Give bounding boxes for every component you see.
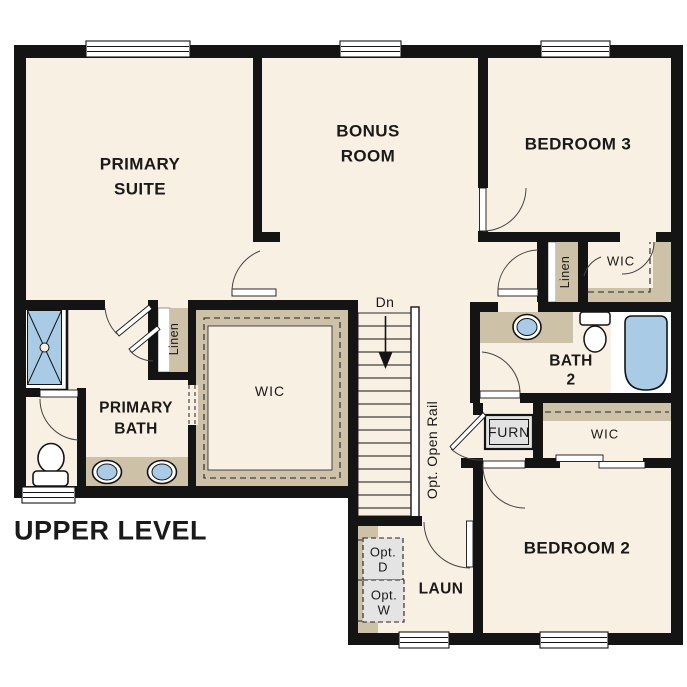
window-bedroom3 bbox=[541, 41, 610, 57]
hall-vestibule-door bbox=[232, 289, 276, 296]
opt-washer-label-line2: W bbox=[378, 604, 391, 617]
window-bonus-room bbox=[340, 41, 401, 57]
laundry-label: LAUN bbox=[419, 581, 464, 597]
laundry-door bbox=[467, 521, 474, 567]
wic-bedroom3-opening bbox=[620, 232, 656, 242]
stair-open-rail bbox=[411, 307, 419, 517]
furnace-label: FURN bbox=[488, 425, 530, 439]
bedroom2-door bbox=[483, 461, 525, 468]
window-primary-bath bbox=[22, 487, 75, 503]
window-laundry bbox=[399, 632, 449, 648]
wic-bedroom3-shelf-east bbox=[653, 242, 671, 306]
bath2-label-line2: 2 bbox=[566, 372, 575, 388]
bedroom3-door bbox=[480, 188, 487, 231]
sink-primary-left bbox=[93, 461, 122, 484]
primary-bath-label-line2: BATH bbox=[114, 421, 158, 437]
window-primary-suite bbox=[86, 41, 190, 57]
bath2-label-line1: BATH bbox=[549, 353, 593, 369]
bath2-north-door bbox=[498, 289, 538, 296]
primary-suite-label-line2: SUITE bbox=[114, 181, 166, 198]
linen-bedroom3-door bbox=[548, 242, 556, 302]
bath2-south-door bbox=[480, 391, 520, 398]
bedroom3-label: BEDROOM 3 bbox=[525, 136, 632, 153]
wic-bedroom2-bypass-door-2 bbox=[599, 462, 645, 469]
linen-primary-label: Linen bbox=[168, 323, 181, 356]
bedroom2-label: BEDROOM 2 bbox=[524, 540, 631, 557]
bonus-room-label-line1: BONUS bbox=[336, 123, 399, 140]
water-closet-door bbox=[40, 390, 78, 397]
wic-bedroom2-label: WIC bbox=[591, 428, 619, 441]
bathtub bbox=[611, 312, 671, 393]
plan-title: UPPER LEVEL bbox=[14, 516, 207, 547]
floor-plan-drawing bbox=[0, 0, 687, 687]
shower bbox=[22, 305, 67, 390]
primary-bath-label-line1: PRIMARY bbox=[99, 400, 173, 416]
bonus-room-label-line2: ROOM bbox=[341, 148, 395, 165]
sink-primary-right bbox=[148, 461, 177, 484]
wic-primary-label: WIC bbox=[255, 384, 285, 398]
opt-dryer-label-line1: Opt. bbox=[370, 546, 396, 559]
window-bedroom2 bbox=[540, 632, 608, 648]
opt-dryer-label-line2: D bbox=[378, 561, 388, 574]
stair-shaft bbox=[358, 313, 411, 516]
staircase bbox=[358, 307, 419, 517]
sink-bath2 bbox=[513, 315, 541, 340]
opt-washer-label-line1: Opt. bbox=[371, 589, 397, 602]
wic-bedroom2-bypass-door-1 bbox=[556, 455, 603, 462]
primary-suite-label-line1: PRIMARY bbox=[100, 156, 181, 173]
stairs-down-label: Dn bbox=[376, 295, 395, 309]
stairs-open-rail-label: Opt. Open Rail bbox=[425, 401, 439, 499]
linen-bedroom3-label: Linen bbox=[559, 256, 572, 289]
wic-bedroom3-label: WIC bbox=[607, 255, 635, 268]
wic-primary-opening bbox=[186, 385, 198, 425]
floor-plan: PRIMARY SUITE BONUS ROOM BEDROOM 3 BEDRO… bbox=[0, 0, 687, 687]
